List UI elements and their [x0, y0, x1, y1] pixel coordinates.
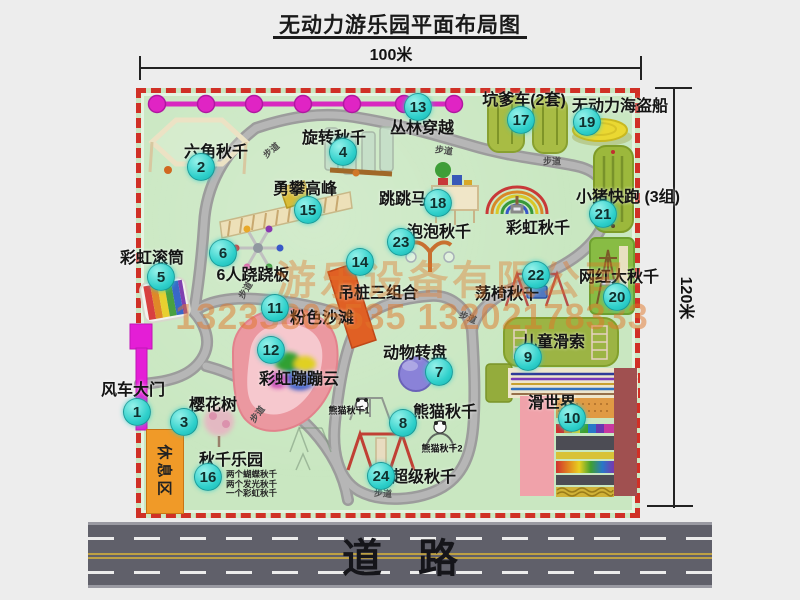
playground-plan-screenshot: 无动力游乐园平面布局图 100米 120米 — [0, 0, 800, 600]
marker-circle-1: 1 — [123, 398, 151, 426]
attraction-label-21: 小猪快跑 (3组) — [576, 183, 680, 207]
attraction-label-8: 熊猫秋千 — [413, 398, 477, 422]
marker-circle-14: 14 — [346, 248, 374, 276]
marker-circle-9: 9 — [514, 343, 542, 371]
marker-circle-24: 24 — [367, 462, 395, 490]
marker-circle-13: 13 — [404, 93, 432, 121]
marker-circle-5: 5 — [147, 263, 175, 291]
marker-circle-6: 6 — [209, 239, 237, 267]
dimension-tick — [655, 87, 692, 89]
title-underline — [273, 36, 527, 39]
marker-circle-20: 20 — [603, 283, 631, 311]
trail-label-2: 步道 — [543, 155, 561, 168]
marker-circle-2: 2 — [187, 153, 215, 181]
attraction-label-24: 超级秋千 — [392, 463, 456, 487]
extra-label-0: 彩虹秋千 — [506, 214, 570, 238]
marker-circle-23: 23 — [387, 228, 415, 256]
dimension-line-right — [673, 88, 675, 508]
attraction-label-1: 风车大门 — [101, 376, 165, 400]
marker-circle-17: 17 — [507, 106, 535, 134]
attraction-label-12: 彩虹蹦蹦云 — [259, 365, 339, 389]
dimension-label-height: 120米 — [676, 277, 700, 320]
attraction-label-14: 吊桩三组合 — [338, 279, 418, 303]
dimension-tick — [640, 56, 642, 80]
dimension-label-width: 100米 — [370, 41, 413, 65]
marker-circle-4: 4 — [329, 138, 357, 166]
dimension-line-top — [140, 67, 642, 69]
trail-label-1: 步道 — [434, 142, 454, 157]
marker-circle-19: 19 — [573, 108, 601, 136]
rest-area-box: 休息区 — [146, 429, 184, 514]
attraction-label-23: 泡泡秋千 — [407, 218, 471, 242]
extra-label-1: 熊猫秋千1 — [328, 404, 369, 417]
marker-circle-11: 11 — [261, 294, 289, 322]
attraction-label-5: 彩虹滚筒 — [120, 244, 184, 268]
marker-circle-7: 7 — [425, 358, 453, 386]
marker-circle-18: 18 — [424, 189, 452, 217]
page-title: 无动力游乐园平面布局图 — [279, 9, 521, 39]
marker-circle-21: 21 — [589, 200, 617, 228]
swing-park-note-2: 一个彩虹秋千 — [226, 487, 277, 499]
attraction-label-3: 樱花树 — [189, 391, 237, 415]
marker-circle-3: 3 — [170, 408, 198, 436]
road-label: 道路 — [342, 526, 494, 584]
rest-area-label: 休息区 — [155, 444, 176, 498]
dimension-tick — [139, 56, 141, 80]
extra-label-2: 熊猫秋千2 — [421, 442, 462, 455]
marker-circle-16: 16 — [194, 463, 222, 491]
marker-circle-8: 8 — [389, 409, 417, 437]
attraction-label-11: 粉色沙滩 — [290, 304, 354, 328]
marker-circle-10: 10 — [558, 404, 586, 432]
attraction-label-18: 跳跳马 — [379, 185, 427, 209]
road: 道路 — [88, 522, 712, 588]
dimension-tick — [647, 505, 693, 507]
marker-circle-22: 22 — [522, 261, 550, 289]
marker-circle-15: 15 — [294, 196, 322, 224]
marker-circle-12: 12 — [257, 336, 285, 364]
